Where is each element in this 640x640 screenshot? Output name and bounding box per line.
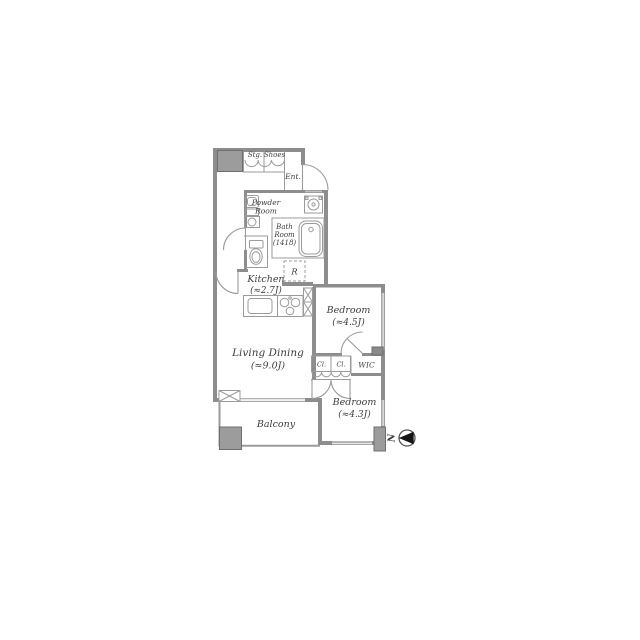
kitchen-door-arc <box>216 272 238 294</box>
window-bedroom-upper-right <box>381 293 384 350</box>
closet-2-label: Cl. <box>336 361 345 369</box>
entrance-door-arc <box>303 165 329 191</box>
pillar-top-left <box>218 151 243 172</box>
wall-under-refrigerator <box>282 282 313 286</box>
toilet-door-arc <box>224 228 246 250</box>
wic-label: WIC <box>358 361 375 370</box>
bedroom-lower-label: Bedroom <box>332 397 377 408</box>
kitchen-label: Kitchen <box>246 274 284 285</box>
window-bath-top <box>305 190 322 192</box>
closet-hanger-arcs-lower <box>312 372 350 377</box>
wall-wic-bottom <box>351 373 382 376</box>
bedroom-upper-size-label: (≈4.5J) <box>332 317 365 328</box>
pillar-wic-corner <box>372 347 383 355</box>
pillar-bottom-left <box>220 427 242 450</box>
window-bedroom-lower-bottom <box>332 441 372 444</box>
bath-room-label-line2: Room <box>273 231 295 239</box>
bath-room-size-label: (1418) <box>273 239 297 247</box>
entrance-label: Ent. <box>284 172 301 181</box>
wall-bath-right <box>324 190 328 287</box>
stove-icon <box>280 297 300 315</box>
powder-room-label-line2: Room <box>254 207 277 216</box>
closet-1-label: Cl. <box>317 361 326 369</box>
bedroom-upper-label: Bedroom <box>326 305 371 316</box>
wall-bedroom-upper-top <box>313 284 385 288</box>
shoes-label: Shoes <box>264 151 286 159</box>
toilet-icon <box>250 241 264 265</box>
wic-door-arc <box>341 332 363 354</box>
compass-north-letter: N <box>388 433 398 443</box>
wall-bedroom-lower-left <box>318 398 322 445</box>
closet-hanger-arcs <box>245 160 285 167</box>
pipe-shaft <box>304 288 313 316</box>
bedroom-lower-size-label: (≈4.3J) <box>338 409 371 420</box>
window-bedroom-lower-right <box>381 400 384 426</box>
living-dining-size-label: (≈9.0J) <box>251 361 286 372</box>
living-dining-label: Living Dining <box>231 347 304 359</box>
bathtub-icon <box>299 221 323 257</box>
floor-plan: N Stg. Shoes Ent. Powder Room Bath Room … <box>0 0 640 640</box>
compass-icon: N <box>388 430 416 446</box>
washing-machine-icon <box>305 196 323 213</box>
closet-door-arcs <box>312 380 350 399</box>
refrigerator-label: R <box>290 268 298 278</box>
utility-box <box>219 391 240 402</box>
kitchen-counter <box>244 296 304 317</box>
floor-plan-page: N Stg. Shoes Ent. Powder Room Bath Room … <box>0 0 640 640</box>
pillar-bottom-right <box>374 427 386 451</box>
balcony-label: Balcony <box>256 419 296 430</box>
bath-room-label-line1: Bath <box>275 223 293 231</box>
wall-entrance-right <box>301 148 305 165</box>
wall-kitchen-door-stub <box>237 269 248 272</box>
kitchen-size-label: (≈2.7J) <box>250 285 282 296</box>
kitchen-sink-icon <box>248 299 272 314</box>
storage-label: Stg. <box>248 151 262 159</box>
